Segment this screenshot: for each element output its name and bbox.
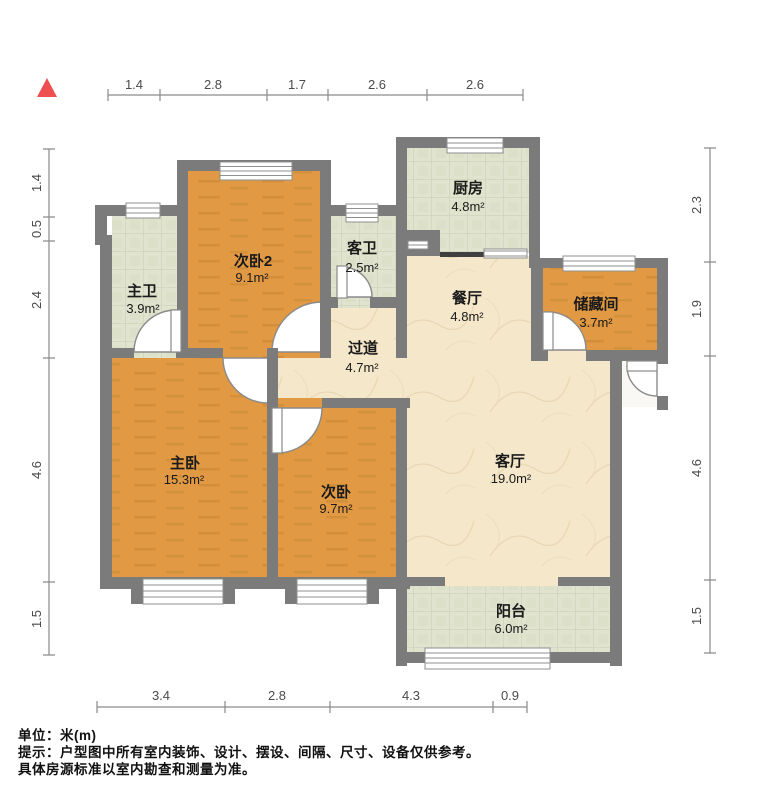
hallway-area: 4.7m² bbox=[345, 360, 379, 375]
dim-left-5: 1.5 bbox=[29, 610, 44, 628]
living-room-label: 客厅 bbox=[494, 452, 525, 470]
dining-room-label: 餐厅 bbox=[452, 289, 482, 307]
master-bedroom-bay-window bbox=[143, 579, 223, 604]
dim-top-1: 1.4 bbox=[125, 77, 143, 92]
kitchen-sliding-door bbox=[484, 249, 527, 258]
dim-top-2: 2.8 bbox=[204, 77, 222, 92]
guest-bathroom-label: 客卫 bbox=[346, 239, 377, 257]
dim-top-4: 2.6 bbox=[368, 77, 386, 92]
guest-bathroom-area: 2.5m² bbox=[345, 260, 379, 275]
north-arrow-icon bbox=[37, 78, 57, 97]
master-bathroom-door-leaf bbox=[171, 310, 181, 352]
storage-room-area: 3.7m² bbox=[579, 315, 613, 330]
living-room-area: 19.0m² bbox=[491, 471, 532, 486]
kitchen-window bbox=[447, 138, 503, 153]
bedroom-door-leaf bbox=[272, 408, 282, 453]
kitchen-label: 厨房 bbox=[453, 179, 483, 197]
dim-left-2: 0.5 bbox=[29, 220, 44, 238]
bedroom-area: 9.7m² bbox=[319, 501, 353, 516]
master-bedroom-area: 15.3m² bbox=[164, 472, 205, 487]
guest-bathroom-vent-window bbox=[346, 204, 378, 222]
bedroom2-area: 9.1m² bbox=[235, 270, 269, 285]
dim-left-4: 4.6 bbox=[29, 461, 44, 479]
balcony-label: 阳台 bbox=[496, 602, 526, 620]
floor-plan: 1.4 2.8 1.7 2.6 2.6 3.4 2.8 4.3 0.9 1.4 … bbox=[0, 0, 760, 800]
balcony-window bbox=[425, 648, 550, 669]
master-bathroom-window bbox=[126, 203, 160, 218]
dining-room-area: 4.8m² bbox=[450, 309, 484, 324]
dim-right-1: 2.3 bbox=[689, 196, 704, 214]
dim-bottom-1: 3.4 bbox=[152, 688, 170, 703]
footer-tip-line2: 具体房源标准以室内勘查和测量为准。 bbox=[18, 758, 256, 778]
entry-door-leaf bbox=[627, 361, 657, 371]
master-bathroom-area: 3.9m² bbox=[126, 301, 160, 316]
master-bedroom-label: 主卧 bbox=[170, 454, 200, 472]
bedroom2-window bbox=[220, 162, 292, 180]
dim-chain-left bbox=[43, 149, 55, 655]
dim-chain-top bbox=[108, 89, 523, 101]
dim-bottom-4: 0.9 bbox=[501, 688, 519, 703]
dim-bottom-3: 4.3 bbox=[402, 688, 420, 703]
dim-top-5: 2.6 bbox=[466, 77, 484, 92]
storage-door-leaf bbox=[543, 312, 553, 350]
dim-right-3: 4.6 bbox=[689, 459, 704, 477]
floor-plan-canvas: 1.4 2.8 1.7 2.6 2.6 3.4 2.8 4.3 0.9 1.4 … bbox=[0, 0, 760, 800]
bedroom2-label: 次卧2 bbox=[234, 252, 272, 270]
kitchen-area: 4.8m² bbox=[451, 199, 485, 214]
dim-left-1: 1.4 bbox=[29, 174, 44, 192]
kitchen-slider-rail bbox=[440, 252, 484, 257]
dim-right-4: 1.5 bbox=[689, 607, 704, 625]
hallway-floor bbox=[278, 358, 407, 398]
kitchen-pass-window bbox=[408, 241, 428, 249]
dim-chain-right bbox=[704, 148, 716, 653]
storage-room-label: 储藏间 bbox=[573, 295, 618, 313]
hallway-label: 过道 bbox=[348, 339, 378, 357]
bedroom-label: 次卧 bbox=[321, 483, 351, 501]
dim-bottom-2: 2.8 bbox=[268, 688, 286, 703]
storage-window bbox=[563, 256, 635, 271]
balcony-area: 6.0m² bbox=[494, 621, 528, 636]
dim-top-3: 1.7 bbox=[288, 77, 306, 92]
dim-left-3: 2.4 bbox=[29, 291, 44, 309]
master-bathroom-label: 主卫 bbox=[127, 282, 157, 300]
dim-right-2: 1.9 bbox=[689, 300, 704, 318]
bedroom-bay-window bbox=[297, 579, 367, 604]
